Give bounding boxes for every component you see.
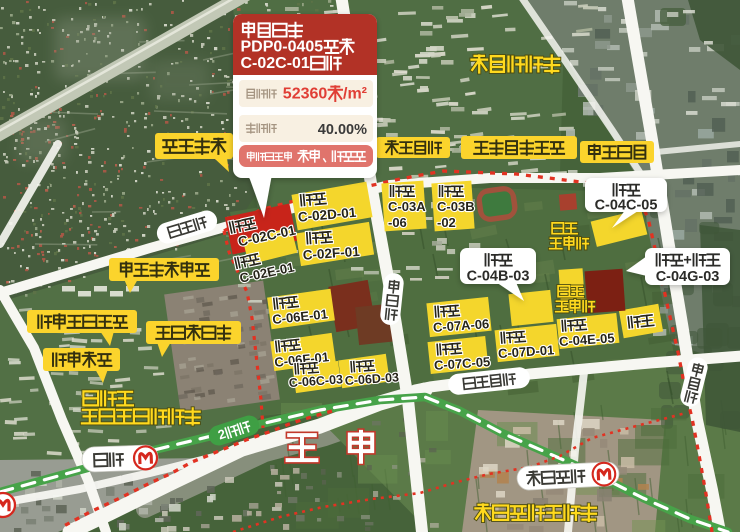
svg-text:-02: -02 [437,215,456,230]
svg-text:C-04C-05: C-04C-05 [595,197,658,213]
svg-text:PDP0-0405: PDP0-0405 [241,39,324,56]
svg-text:40.00%: 40.00% [318,122,367,138]
svg-text:C-03B: C-03B [437,199,475,214]
svg-text:-06: -06 [388,215,407,230]
svg-text:/m²: /m² [343,86,367,103]
svg-text:+: + [683,252,692,268]
svg-text:C-03A: C-03A [388,199,426,214]
svg-text:C-04B-03: C-04B-03 [467,268,530,284]
svg-text:52360: 52360 [283,86,328,103]
svg-text:C-02C-01: C-02C-01 [241,55,310,72]
svg-text:C-04G-03: C-04G-03 [656,269,720,285]
